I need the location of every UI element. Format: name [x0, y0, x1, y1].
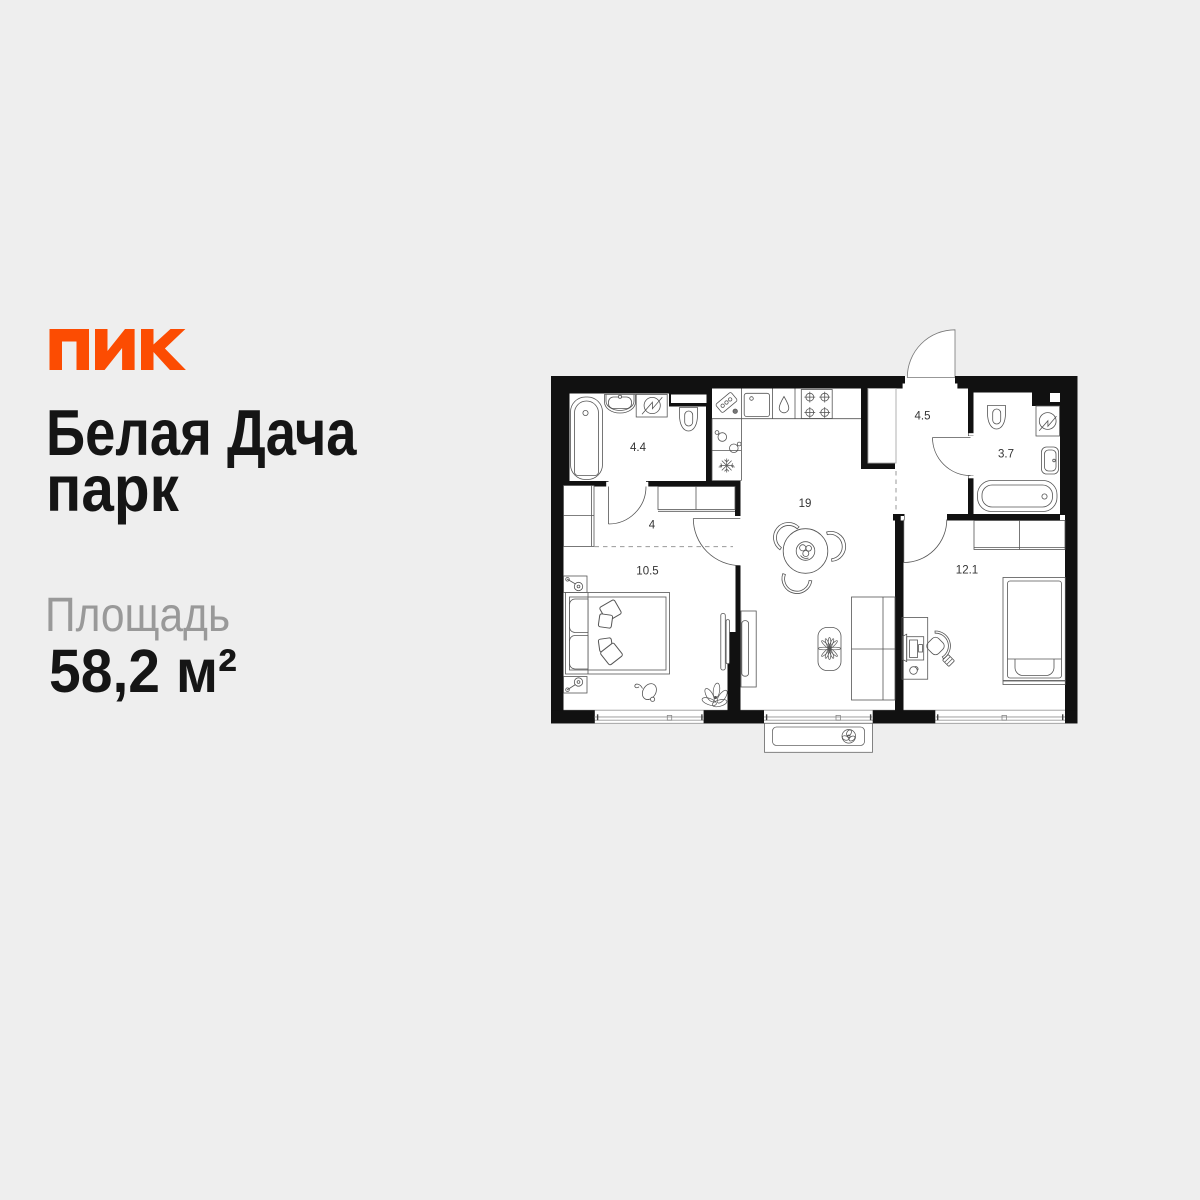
svg-text:12.1: 12.1: [956, 565, 978, 577]
svg-text:4: 4: [649, 520, 656, 532]
svg-text:4.5: 4.5: [915, 411, 931, 423]
svg-text:10.5: 10.5: [636, 565, 658, 577]
svg-text:3.7: 3.7: [998, 449, 1014, 461]
svg-text:4.4: 4.4: [630, 442, 647, 454]
svg-text:19: 19: [799, 498, 812, 510]
